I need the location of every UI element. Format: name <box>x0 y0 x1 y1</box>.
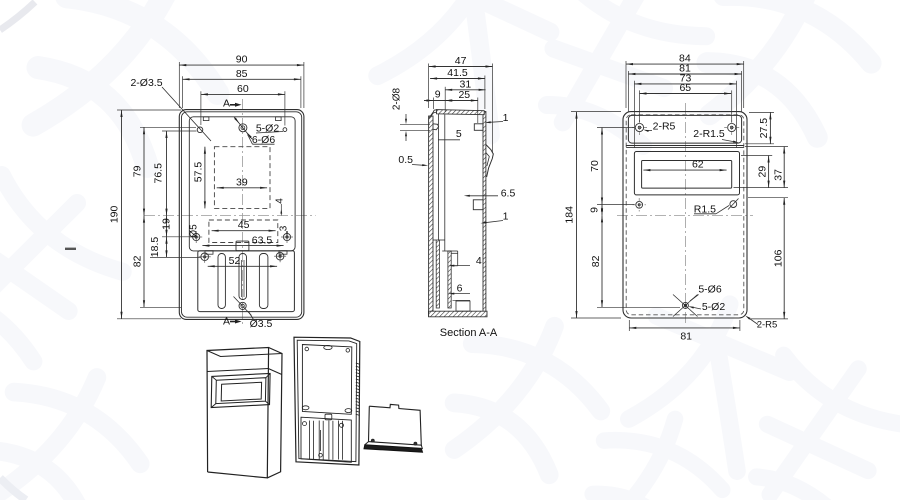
svg-text:63.5: 63.5 <box>252 235 273 247</box>
svg-text:190: 190 <box>109 205 121 223</box>
svg-text:19: 19 <box>161 218 173 230</box>
svg-text:70: 70 <box>589 160 601 172</box>
svg-text:Ø5: Ø5 <box>189 224 200 238</box>
svg-text:37: 37 <box>773 169 785 181</box>
svg-text:106: 106 <box>773 249 785 267</box>
svg-text:Section A-A: Section A-A <box>440 327 498 339</box>
svg-text:184: 184 <box>564 206 576 224</box>
svg-text:25: 25 <box>458 89 470 101</box>
svg-text:2-Ø3.5: 2-Ø3.5 <box>130 77 162 89</box>
svg-text:1: 1 <box>503 211 509 223</box>
svg-text:29: 29 <box>757 166 769 178</box>
svg-text:5-Ø6: 5-Ø6 <box>698 284 722 296</box>
svg-text:45: 45 <box>238 219 250 231</box>
svg-text:5-Ø2: 5-Ø2 <box>702 301 726 313</box>
svg-text:47: 47 <box>455 55 467 67</box>
svg-text:85: 85 <box>236 68 248 80</box>
svg-text:79: 79 <box>132 165 144 177</box>
svg-text:76.5: 76.5 <box>153 163 165 184</box>
svg-text:39: 39 <box>236 176 248 188</box>
svg-text:3: 3 <box>279 225 290 231</box>
svg-text:65: 65 <box>679 82 691 94</box>
svg-text:2-R5: 2-R5 <box>757 320 778 331</box>
svg-text:A: A <box>223 98 230 110</box>
svg-text:27.5: 27.5 <box>758 118 770 139</box>
svg-text:2-Ø8: 2-Ø8 <box>392 87 403 110</box>
svg-text:81: 81 <box>680 331 692 343</box>
svg-text:57.5: 57.5 <box>193 162 205 183</box>
svg-text:62: 62 <box>692 159 704 171</box>
svg-text:18.5: 18.5 <box>149 237 161 258</box>
svg-text:2-R5: 2-R5 <box>653 121 676 133</box>
svg-text:60: 60 <box>237 83 249 95</box>
svg-text:52: 52 <box>229 255 241 267</box>
svg-text:9: 9 <box>589 207 601 213</box>
svg-text:6.5: 6.5 <box>501 188 516 200</box>
svg-text:5: 5 <box>456 128 462 140</box>
svg-text:82: 82 <box>132 255 144 267</box>
svg-text:A: A <box>223 315 230 327</box>
svg-text:6: 6 <box>457 283 463 295</box>
svg-text:2-R1.5: 2-R1.5 <box>693 128 725 140</box>
svg-text:82: 82 <box>590 255 602 267</box>
svg-text:4: 4 <box>476 255 482 267</box>
svg-text:0.5: 0.5 <box>398 154 413 166</box>
svg-text:1: 1 <box>503 112 509 124</box>
svg-text:41.5: 41.5 <box>447 67 468 79</box>
svg-text:4: 4 <box>275 198 286 204</box>
svg-text:9: 9 <box>435 88 441 100</box>
svg-text:90: 90 <box>236 54 248 66</box>
svg-text:Ø3.5: Ø3.5 <box>250 318 273 330</box>
